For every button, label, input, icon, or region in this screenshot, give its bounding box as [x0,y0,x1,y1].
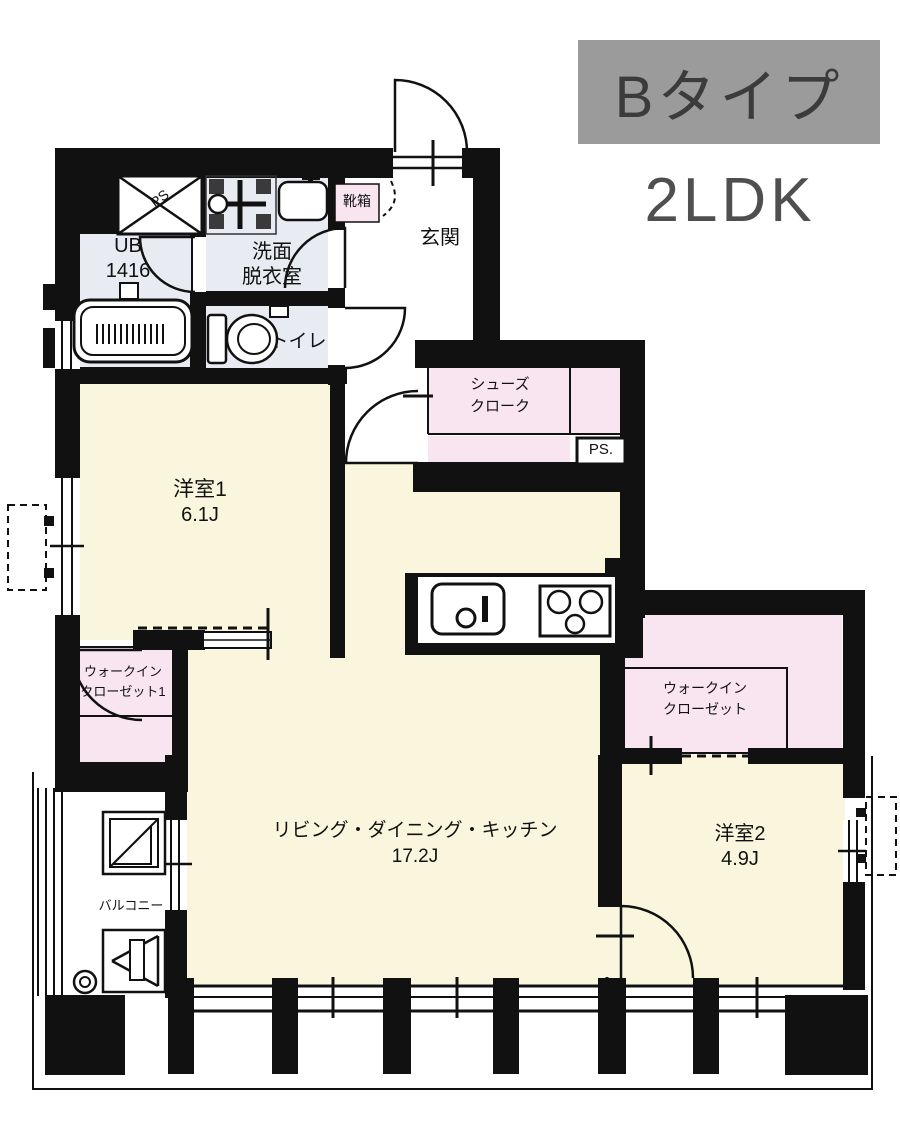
hatch-icon [103,812,165,874]
drain-icon [74,971,96,993]
plan-layout-title: 2LDK [620,160,840,240]
kitchen-sink-icon [432,584,504,634]
balcony-railing [38,788,62,996]
stove-icon [540,586,610,636]
toilet-label: トイレ [258,330,338,354]
entry-door-arc [395,80,467,152]
shoe-box-label: 靴箱 [335,193,379,211]
washer-icon [206,176,276,234]
pipe-space-side-label: PS. [577,441,625,460]
entry-threshold [393,140,462,186]
bedroom1-window [50,478,84,615]
washroom-label: 洗面 脱衣室 [212,240,332,290]
floorplan-page: Bタイプ 2LDK UB 1416 洗面 脱衣室 トイレ 玄関 靴箱 シューズ … [0,0,900,1124]
toilet-door-arc [345,308,405,368]
bath-label: UB 1416 [78,234,178,284]
balcony-label: バルコニー [84,898,178,914]
entry-label: 玄関 [400,226,480,251]
ac-unit-left [8,505,54,590]
plan-layout-text: 2LDK [644,165,815,236]
closet2-label: ウォークイン クローゼット [640,678,770,720]
bedroom2-label: 洋室2 4.9J [685,822,795,872]
bedroom1-label: 洋室1 6.1J [120,477,280,528]
hall-door-arc [346,391,418,463]
ldk-label: リビング・ダイニング・キッチン 17.2J [250,818,580,869]
plan-type-title: Bタイプ [578,40,880,144]
partition-icon [103,930,165,992]
plan-type-text: Bタイプ [615,50,844,134]
shoes-cloak-label: シューズ クローク [435,374,565,418]
closet1-label: ウォークイン クローゼット1 [68,662,178,702]
kitchen-counter [405,573,615,655]
entry-step-line [383,181,395,216]
